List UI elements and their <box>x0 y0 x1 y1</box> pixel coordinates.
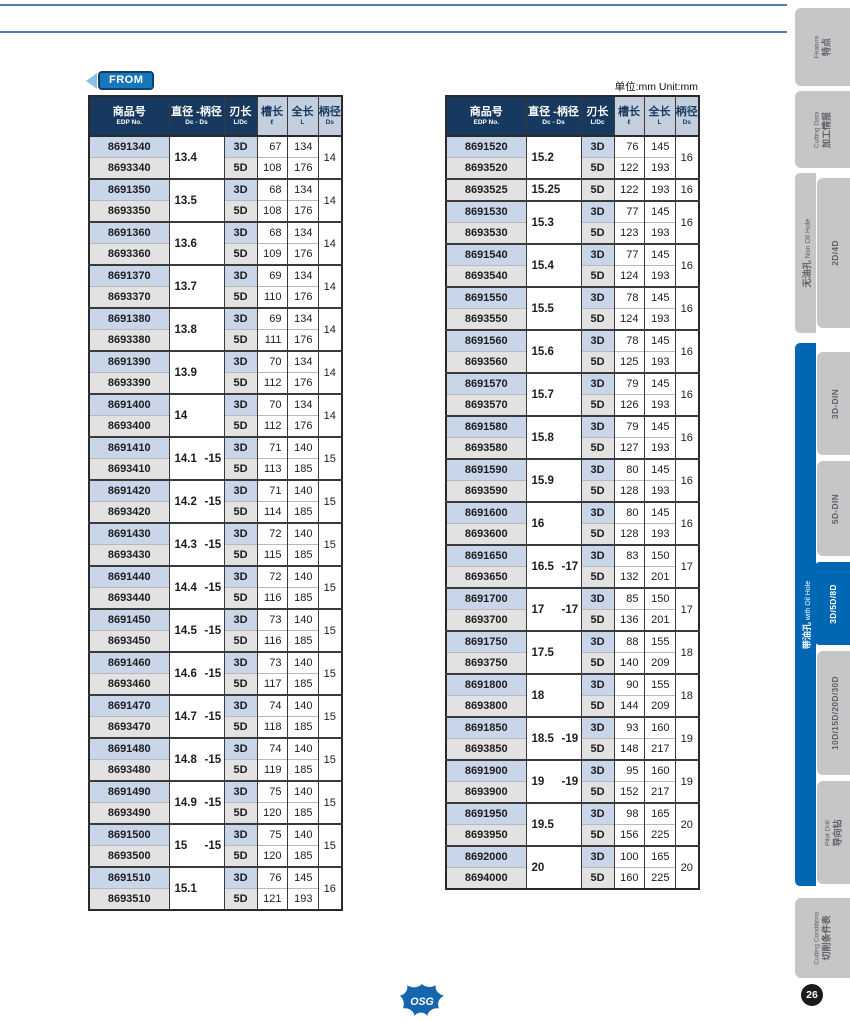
col-header-oal: 全长L <box>644 96 675 136</box>
edp-no: 8691600 <box>446 502 526 524</box>
shank-dia-value: 17 <box>675 545 699 588</box>
flute-ratio: 5D <box>224 502 257 524</box>
sidebar-group-with-oil-hole: 带油孔 with Oil Hole <box>795 343 816 886</box>
edp-no: 8693420 <box>89 502 169 524</box>
spec-row: 869152015.23D7614516 <box>446 136 699 158</box>
overall-length: 193 <box>644 524 675 546</box>
edp-no: 8691380 <box>89 308 169 330</box>
col-header-flute: 槽长ℓ <box>614 96 644 136</box>
flute-ratio: 5D <box>581 825 614 847</box>
spec-row: 869143014.3-153D7214015 <box>89 523 342 545</box>
shank-dia-value: 16 <box>675 416 699 459</box>
flute-length: 116 <box>257 631 287 653</box>
edp-no: 8693540 <box>446 266 526 288</box>
edp-no: 8691580 <box>446 416 526 438</box>
sidebar-tab-cutting-conditions[interactable]: Cutting Conditions切削条件表 <box>795 898 850 978</box>
flute-length: 121 <box>257 889 287 911</box>
flute-ratio: 3D <box>224 222 257 244</box>
edp-no: 8693400 <box>89 416 169 438</box>
flute-length: 128 <box>614 524 644 546</box>
spec-row: 869138013.83D6913414 <box>89 308 342 330</box>
overall-length: 209 <box>644 653 675 675</box>
shank-dia-value: 18 <box>675 631 699 674</box>
overall-length: 193 <box>644 179 675 201</box>
spec-row: 869190019-193D9516019 <box>446 760 699 782</box>
shank-dia-value: 17 <box>675 588 699 631</box>
flute-ratio: 3D <box>224 566 257 588</box>
overall-length: 145 <box>287 867 318 889</box>
overall-length: 176 <box>287 201 318 223</box>
shank-dia-value: 15 <box>318 738 342 781</box>
flute-length: 72 <box>257 566 287 588</box>
osg-logo: OSG <box>398 983 446 1019</box>
edp-no: 8691750 <box>446 631 526 653</box>
edp-no: 8691470 <box>89 695 169 717</box>
flute-ratio: 3D <box>581 674 614 696</box>
edp-no: 8691530 <box>446 201 526 223</box>
edp-no: 8691390 <box>89 351 169 373</box>
shank-dia-value: 15 <box>318 824 342 867</box>
flute-length: 111 <box>257 330 287 352</box>
overall-length: 145 <box>644 502 675 524</box>
flute-length: 85 <box>614 588 644 610</box>
flute-length: 117 <box>257 674 287 696</box>
shank-dia-value: 19 <box>675 717 699 760</box>
shank-dia-value: 15 <box>318 781 342 824</box>
edp-no: 8693700 <box>446 610 526 632</box>
flute-length: 83 <box>614 545 644 567</box>
flute-length: 123 <box>614 223 644 245</box>
overall-length: 193 <box>644 481 675 503</box>
flute-length: 68 <box>257 222 287 244</box>
overall-length: 176 <box>287 373 318 395</box>
spec-row: 869137013.73D6913414 <box>89 265 342 287</box>
flute-length: 70 <box>257 394 287 416</box>
flute-ratio: 5D <box>581 610 614 632</box>
edp-no: 8693340 <box>89 158 169 180</box>
col-header-edp: 商品号EDP No. <box>446 96 526 136</box>
spec-row: 869141014.1-153D7114015 <box>89 437 342 459</box>
diameter-value: 14.8-15 <box>169 738 224 781</box>
overall-length: 193 <box>644 158 675 180</box>
flute-ratio: 3D <box>581 545 614 567</box>
overall-length: 225 <box>644 868 675 890</box>
flute-ratio: 3D <box>581 803 614 825</box>
edp-no: 8693490 <box>89 803 169 825</box>
flute-ratio: 5D <box>224 803 257 825</box>
edp-no: 8693590 <box>446 481 526 503</box>
overall-length: 134 <box>287 394 318 416</box>
spec-row: 869157015.73D7914516 <box>446 373 699 395</box>
flute-ratio: 3D <box>581 201 614 223</box>
spec-row: 869144014.4-153D7214015 <box>89 566 342 588</box>
diameter-value: 15.25 <box>526 179 581 201</box>
sidebar-tab-5d-din[interactable]: 5D-DIN <box>817 461 850 556</box>
diameter-value: 13.5 <box>169 179 224 222</box>
edp-no: 8691460 <box>89 652 169 674</box>
flute-length: 124 <box>614 266 644 288</box>
edp-no: 8691430 <box>89 523 169 545</box>
flute-length: 136 <box>614 610 644 632</box>
diameter-value: 18 <box>526 674 581 717</box>
overall-length: 145 <box>644 136 675 158</box>
flute-ratio: 3D <box>224 738 257 760</box>
diameter-value: 16 <box>526 502 581 545</box>
shank-dia-value: 14 <box>318 394 342 437</box>
overall-length: 193 <box>644 395 675 417</box>
diameter-value: 13.6 <box>169 222 224 265</box>
edp-no: 8693750 <box>446 653 526 675</box>
diameter-value: 14.3-15 <box>169 523 224 566</box>
overall-length: 134 <box>287 222 318 244</box>
edp-no: 8693370 <box>89 287 169 309</box>
flute-ratio: 3D <box>224 867 257 889</box>
flute-ratio: 5D <box>224 158 257 180</box>
flute-ratio: 3D <box>224 136 257 158</box>
overall-length: 176 <box>287 244 318 266</box>
flute-ratio: 5D <box>224 287 257 309</box>
diameter-value: 15.5 <box>526 287 581 330</box>
overall-length: 185 <box>287 631 318 653</box>
shank-dia-value: 15 <box>318 609 342 652</box>
diameter-value: 13.7 <box>169 265 224 308</box>
spec-row: 869134013.43D6713414 <box>89 136 342 158</box>
shank-dia-value: 16 <box>675 502 699 545</box>
spec-row: 869151015.13D7614516 <box>89 867 342 889</box>
flute-ratio: 3D <box>224 437 257 459</box>
flute-length: 88 <box>614 631 644 653</box>
diameter-value: 14 <box>169 394 224 437</box>
spec-row: 8691400143D7013414 <box>89 394 342 416</box>
flute-length: 144 <box>614 696 644 718</box>
flute-ratio: 3D <box>224 781 257 803</box>
spec-row: 869175017.53D8815518 <box>446 631 699 653</box>
flute-length: 113 <box>257 459 287 481</box>
flute-ratio: 5D <box>581 179 614 201</box>
top-rule-2 <box>0 31 787 33</box>
shank-dia-value: 16 <box>318 867 342 910</box>
spec-row: 869155015.53D7814516 <box>446 287 699 309</box>
flute-ratio: 3D <box>581 459 614 481</box>
edp-no: 8693510 <box>89 889 169 911</box>
edp-no: 8691900 <box>446 760 526 782</box>
edp-no: 8693950 <box>446 825 526 847</box>
overall-length: 193 <box>644 309 675 331</box>
edp-no: 8693440 <box>89 588 169 610</box>
overall-length: 145 <box>644 244 675 266</box>
edp-no: 8693550 <box>446 309 526 331</box>
flute-ratio: 5D <box>224 760 257 782</box>
flute-ratio: 3D <box>224 179 257 201</box>
col-header-dia: 直径 -柄径Dc - Ds <box>169 96 224 136</box>
edp-no: 8691510 <box>89 867 169 889</box>
edp-no: 8691850 <box>446 717 526 739</box>
spec-row: 869153015.33D7714516 <box>446 201 699 223</box>
catalog-page: FROM 单位:mm Unit:mm 商品号EDP No. 直径 -柄径Dc -… <box>0 0 850 1021</box>
overall-length: 150 <box>644 545 675 567</box>
diameter-value: 13.8 <box>169 308 224 351</box>
spec-table-left: 商品号EDP No. 直径 -柄径Dc - Ds 刃长L/Dc 槽长ℓ 全长L … <box>88 95 343 911</box>
overall-length: 193 <box>644 223 675 245</box>
flute-ratio: 5D <box>224 674 257 696</box>
flute-ratio: 5D <box>224 373 257 395</box>
flute-ratio: 3D <box>581 244 614 266</box>
flute-length: 69 <box>257 308 287 330</box>
diameter-value: 13.4 <box>169 136 224 179</box>
col-header-oal: 全长L <box>287 96 318 136</box>
flute-ratio: 3D <box>224 480 257 502</box>
diameter-value: 15.3 <box>526 201 581 244</box>
shank-dia-value: 19 <box>675 760 699 803</box>
edp-no: 8691550 <box>446 287 526 309</box>
overall-length: 185 <box>287 803 318 825</box>
flute-ratio: 5D <box>581 223 614 245</box>
overall-length: 160 <box>644 717 675 739</box>
diameter-value: 15.8 <box>526 416 581 459</box>
diameter-value: 14.4-15 <box>169 566 224 609</box>
spec-row: 869136013.63D6813414 <box>89 222 342 244</box>
edp-no: 8693430 <box>89 545 169 567</box>
edp-no: 8693460 <box>89 674 169 696</box>
flute-length: 152 <box>614 782 644 804</box>
edp-no: 8691340 <box>89 136 169 158</box>
left-arrow-icon <box>86 73 97 89</box>
diameter-value: 20 <box>526 846 581 889</box>
edp-no: 8692000 <box>446 846 526 868</box>
osg-logo-text: OSG <box>410 996 434 1008</box>
overall-length: 145 <box>644 287 675 309</box>
flute-length: 112 <box>257 416 287 438</box>
edp-no: 8691450 <box>89 609 169 631</box>
shank-dia-value: 14 <box>318 308 342 351</box>
spec-row: 869352515.255D12219316 <box>446 179 699 201</box>
flute-length: 76 <box>257 867 287 889</box>
col-header-shank: 柄径Ds <box>675 96 699 136</box>
flute-ratio: 3D <box>224 394 257 416</box>
flute-length: 93 <box>614 717 644 739</box>
flute-length: 70 <box>257 351 287 373</box>
overall-length: 165 <box>644 846 675 868</box>
overall-length: 193 <box>644 438 675 460</box>
flute-ratio: 3D <box>224 308 257 330</box>
overall-length: 145 <box>644 330 675 352</box>
diameter-value: 19-19 <box>526 760 581 803</box>
spec-row: 869154015.43D7714516 <box>446 244 699 266</box>
flute-length: 78 <box>614 330 644 352</box>
flute-length: 67 <box>257 136 287 158</box>
flute-length: 115 <box>257 545 287 567</box>
col-header-dia: 直径 -柄径Dc - Ds <box>526 96 581 136</box>
overall-length: 176 <box>287 330 318 352</box>
flute-ratio: 3D <box>224 652 257 674</box>
shank-dia-value: 16 <box>675 201 699 244</box>
spec-row: 869156015.63D7814516 <box>446 330 699 352</box>
diameter-value: 15.6 <box>526 330 581 373</box>
flute-length: 68 <box>257 179 287 201</box>
edp-no: 8691490 <box>89 781 169 803</box>
spec-row: 869149014.9-153D7514015 <box>89 781 342 803</box>
edp-no: 8691540 <box>446 244 526 266</box>
edp-no: 8691520 <box>446 136 526 158</box>
shank-dia-value: 14 <box>318 351 342 394</box>
shank-dia-value: 14 <box>318 265 342 308</box>
edp-no: 8694000 <box>446 868 526 890</box>
overall-length: 140 <box>287 652 318 674</box>
flute-ratio: 5D <box>581 481 614 503</box>
flute-ratio: 3D <box>224 609 257 631</box>
overall-length: 145 <box>644 201 675 223</box>
spec-row: 869139013.93D7013414 <box>89 351 342 373</box>
overall-length: 176 <box>287 416 318 438</box>
col-header-ldc: 刃长L/Dc <box>581 96 614 136</box>
edp-no: 8691360 <box>89 222 169 244</box>
flute-length: 79 <box>614 416 644 438</box>
diameter-value: 14.9-15 <box>169 781 224 824</box>
overall-length: 134 <box>287 265 318 287</box>
shank-dia-value: 14 <box>318 222 342 265</box>
col-header-shank: 柄径Ds <box>318 96 342 136</box>
spec-row: 8691600163D8014516 <box>446 502 699 524</box>
shank-dia-value: 16 <box>675 330 699 373</box>
edp-no: 8693450 <box>89 631 169 653</box>
overall-length: 185 <box>287 674 318 696</box>
sidebar-tab-3d5d8d-active[interactable]: 3D/5D/8D <box>814 562 850 645</box>
flute-length: 73 <box>257 609 287 631</box>
flute-ratio: 3D <box>581 502 614 524</box>
shank-dia-value: 14 <box>318 179 342 222</box>
from-link[interactable]: FROM <box>86 71 154 90</box>
flute-ratio: 5D <box>224 416 257 438</box>
flute-length: 74 <box>257 738 287 760</box>
overall-length: 140 <box>287 695 318 717</box>
flute-length: 122 <box>614 179 644 201</box>
shank-dia-value: 16 <box>675 287 699 330</box>
header-row: 商品号EDP No. 直径 -柄径Dc - Ds 刃长L/Dc 槽长ℓ 全长L … <box>89 96 342 136</box>
sidebar-tab-10d-15d-20d-30d[interactable]: 10D/15D/20D/30D <box>817 651 850 775</box>
flute-ratio: 5D <box>581 158 614 180</box>
overall-length: 145 <box>644 373 675 395</box>
col-header-ldc: 刃长L/Dc <box>224 96 257 136</box>
overall-length: 150 <box>644 588 675 610</box>
diameter-value: 14.1-15 <box>169 437 224 480</box>
sidebar-tab-3d-din[interactable]: 3D-DIN <box>817 352 850 455</box>
flute-length: 116 <box>257 588 287 610</box>
overall-length: 140 <box>287 437 318 459</box>
flute-ratio: 3D <box>581 330 614 352</box>
shank-dia-value: 15 <box>318 437 342 480</box>
shank-dia-value: 15 <box>318 566 342 609</box>
flute-length: 108 <box>257 201 287 223</box>
edp-no: 8693410 <box>89 459 169 481</box>
diameter-value: 14.2-15 <box>169 480 224 523</box>
shank-dia-value: 15 <box>318 695 342 738</box>
flute-length: 132 <box>614 567 644 589</box>
spec-row: 869145014.5-153D7314015 <box>89 609 342 631</box>
flute-ratio: 3D <box>581 846 614 868</box>
flute-length: 80 <box>614 502 644 524</box>
edp-no: 8693380 <box>89 330 169 352</box>
flute-ratio: 5D <box>581 352 614 374</box>
diameter-value: 15.4 <box>526 244 581 287</box>
flute-ratio: 5D <box>224 588 257 610</box>
flute-length: 77 <box>614 244 644 266</box>
edp-no: 8693900 <box>446 782 526 804</box>
flute-ratio: 3D <box>581 631 614 653</box>
diameter-value: 13.9 <box>169 351 224 394</box>
edp-no: 8691480 <box>89 738 169 760</box>
page-number-badge: 26 <box>801 984 823 1006</box>
flute-length: 95 <box>614 760 644 782</box>
flute-ratio: 5D <box>224 545 257 567</box>
overall-length: 217 <box>644 782 675 804</box>
edp-no: 8693600 <box>446 524 526 546</box>
flute-length: 108 <box>257 158 287 180</box>
diameter-value: 14.7-15 <box>169 695 224 738</box>
flute-ratio: 5D <box>581 782 614 804</box>
overall-length: 134 <box>287 351 318 373</box>
edp-no: 8693850 <box>446 739 526 761</box>
flute-ratio: 5D <box>224 717 257 739</box>
flute-length: 72 <box>257 523 287 545</box>
sidebar-tab-pilot-drill[interactable]: Pilot Drill导向钻 <box>817 781 850 884</box>
sidebar-tab-2d4d[interactable]: 2D/4D <box>817 178 850 328</box>
flute-length: 73 <box>257 652 287 674</box>
edp-no: 8691410 <box>89 437 169 459</box>
diameter-value: 15-15 <box>169 824 224 867</box>
overall-length: 134 <box>287 308 318 330</box>
flute-length: 74 <box>257 695 287 717</box>
sidebar-tab-feature[interactable]: Feature特点 <box>795 8 850 86</box>
overall-length: 134 <box>287 136 318 158</box>
overall-length: 185 <box>287 459 318 481</box>
overall-length: 140 <box>287 480 318 502</box>
col-header-flute: 槽长ℓ <box>257 96 287 136</box>
flute-ratio: 5D <box>581 524 614 546</box>
flute-length: 125 <box>614 352 644 374</box>
diameter-value: 15.2 <box>526 136 581 179</box>
overall-length: 185 <box>287 588 318 610</box>
flute-length: 90 <box>614 674 644 696</box>
spec-row: 869159015.93D8014516 <box>446 459 699 481</box>
flute-length: 75 <box>257 824 287 846</box>
overall-length: 140 <box>287 781 318 803</box>
flute-ratio: 5D <box>581 696 614 718</box>
flute-length: 128 <box>614 481 644 503</box>
overall-length: 193 <box>644 352 675 374</box>
flute-ratio: 3D <box>581 588 614 610</box>
shank-dia-value: 15 <box>318 652 342 695</box>
edp-no: 8691800 <box>446 674 526 696</box>
shank-dia-value: 20 <box>675 846 699 889</box>
edp-no: 8691420 <box>89 480 169 502</box>
shank-dia-value: 16 <box>675 136 699 179</box>
overall-length: 185 <box>287 717 318 739</box>
flute-length: 98 <box>614 803 644 825</box>
overall-length: 185 <box>287 545 318 567</box>
spec-row: 869185018.5-193D9316019 <box>446 717 699 739</box>
sidebar-tab-cutting-data[interactable]: Cutting Data加工情报 <box>795 91 850 168</box>
flute-ratio: 5D <box>224 330 257 352</box>
flute-ratio: 5D <box>581 395 614 417</box>
diameter-value: 15.1 <box>169 867 224 910</box>
flute-length: 79 <box>614 373 644 395</box>
spec-row: 869135013.53D6813414 <box>89 179 342 201</box>
overall-length: 140 <box>287 738 318 760</box>
spec-row: 869147014.7-153D7414015 <box>89 695 342 717</box>
edp-no: 8693480 <box>89 760 169 782</box>
spec-row: 8692000203D10016520 <box>446 846 699 868</box>
overall-length: 155 <box>644 674 675 696</box>
